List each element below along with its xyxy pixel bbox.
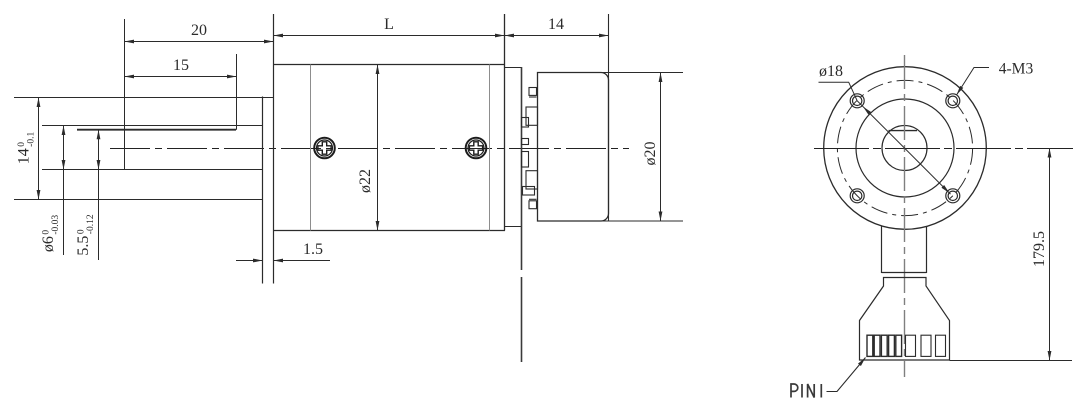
svg-text:ø18: ø18 — [819, 63, 843, 80]
svg-text:179.5: 179.5 — [1031, 231, 1048, 267]
svg-text:15: 15 — [173, 57, 189, 74]
svg-text:4-M3: 4-M3 — [999, 61, 1034, 78]
svg-text:L: L — [384, 16, 394, 33]
svg-text:20: 20 — [191, 22, 207, 39]
svg-text:ø22: ø22 — [357, 169, 374, 193]
svg-text:ø20: ø20 — [642, 142, 659, 166]
svg-text:14: 14 — [548, 16, 564, 33]
svg-text:1.5: 1.5 — [303, 241, 323, 258]
